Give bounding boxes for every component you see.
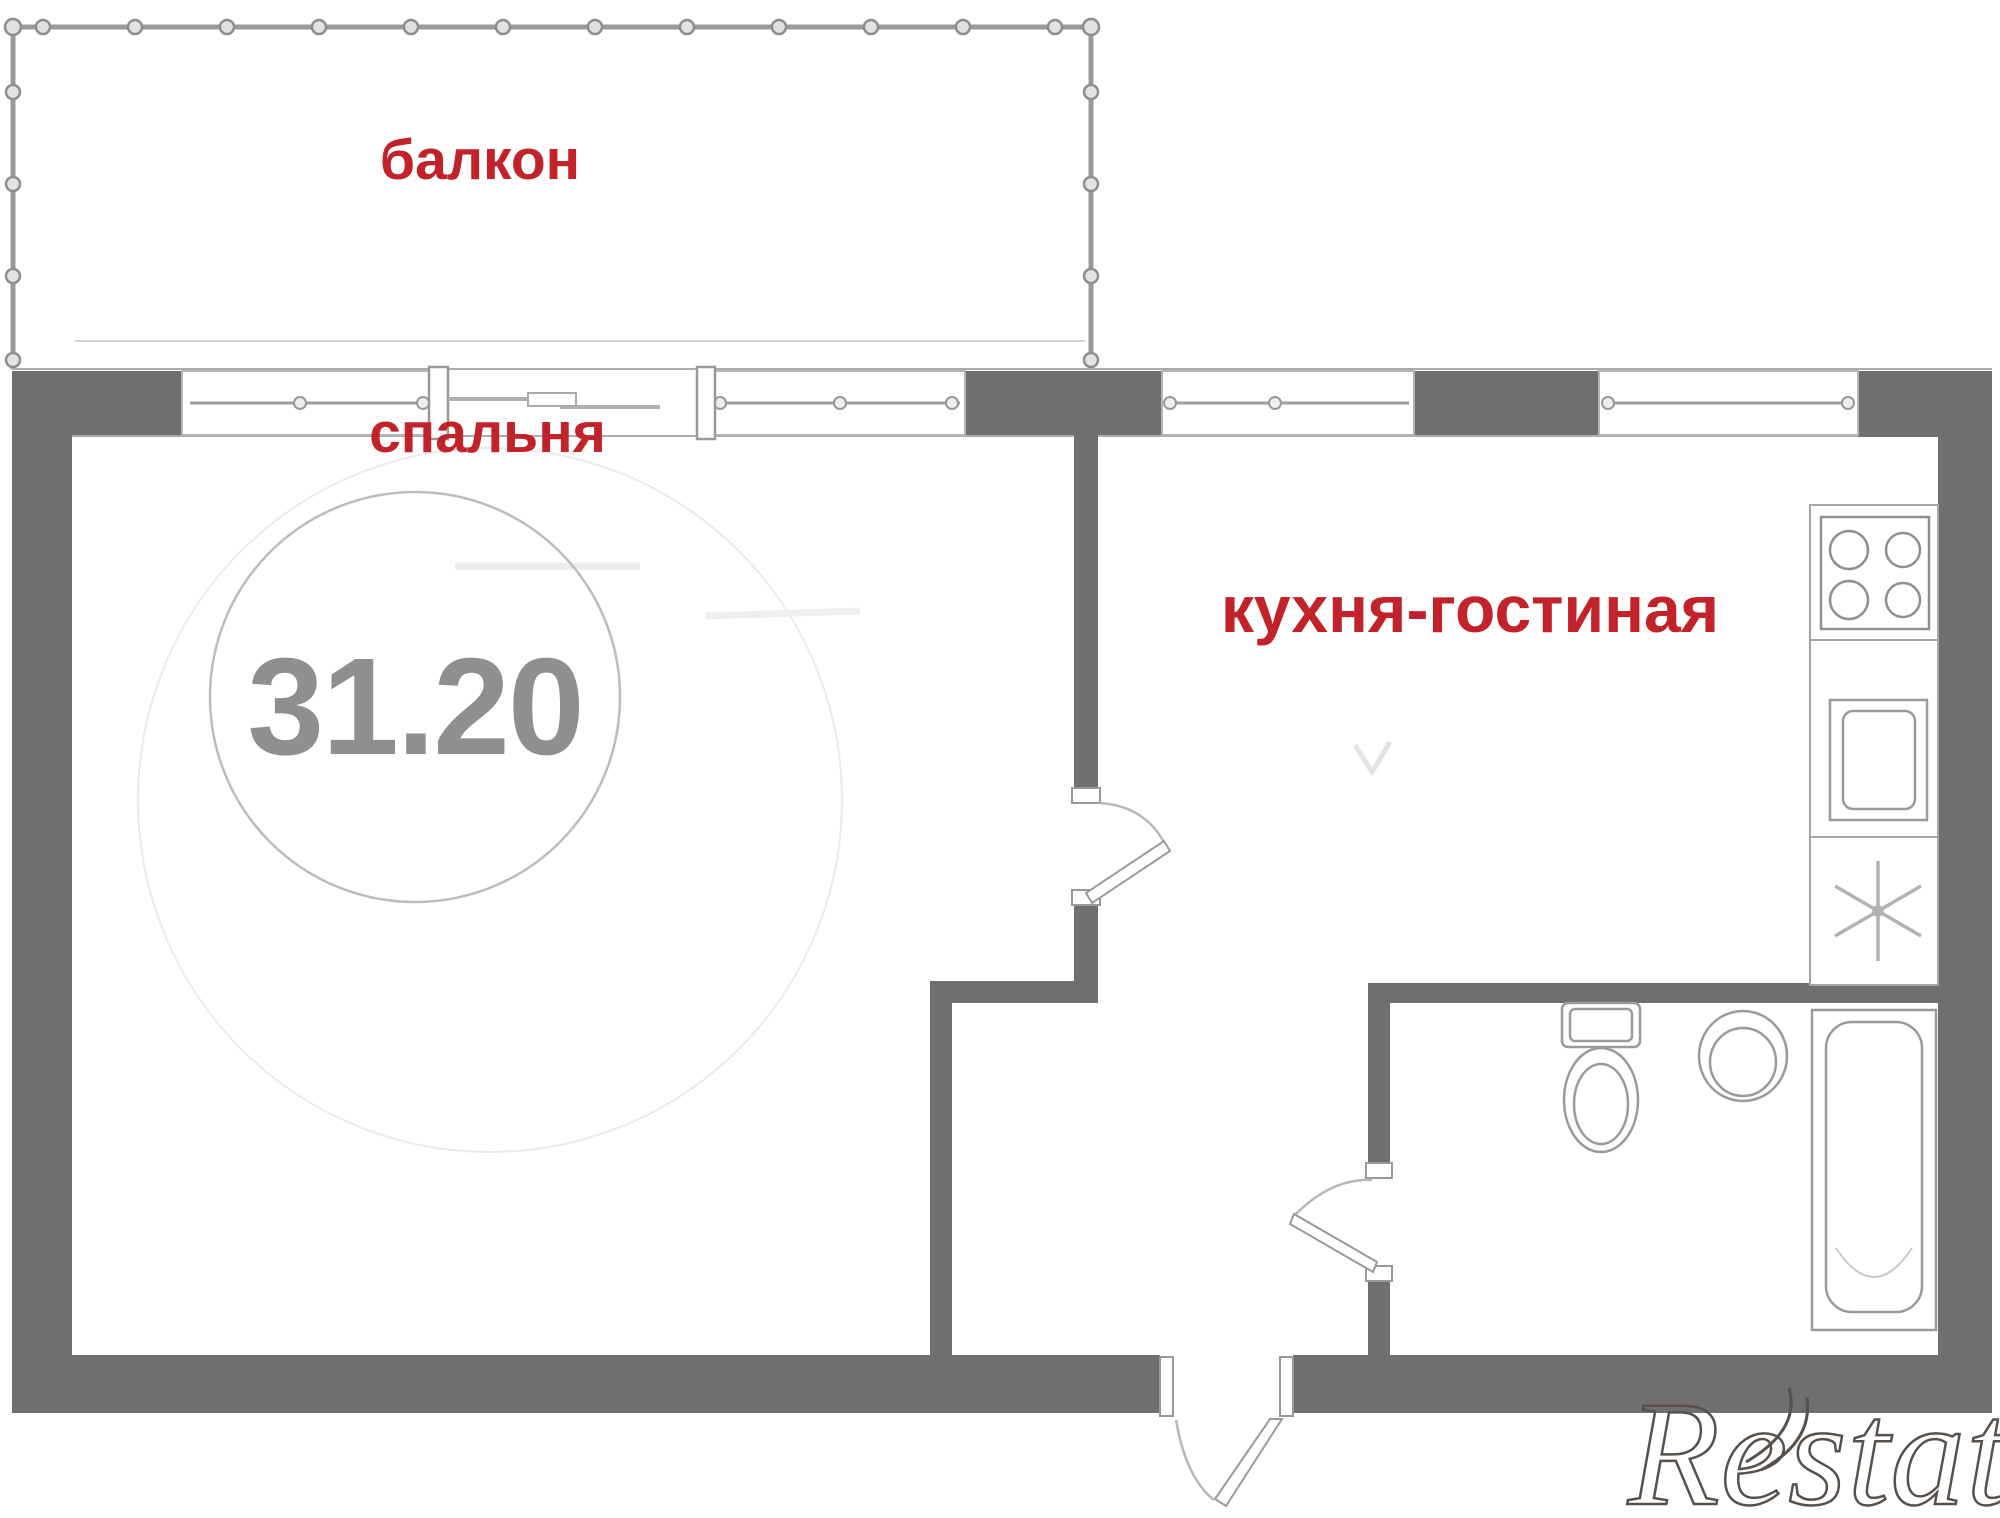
bedroom-area-value: 31.20 — [205, 628, 625, 787]
balcony-railing — [5, 19, 1099, 369]
washbasin-icon — [1699, 1011, 1787, 1101]
ghost-watermark-marks — [138, 448, 1390, 1152]
balcony-label: балкон — [355, 132, 605, 189]
kitchen-living-label: кухня-гостиная — [1150, 576, 1790, 642]
sink-icon — [1830, 700, 1927, 820]
toilet-icon — [1562, 1003, 1640, 1152]
stove-icon — [1821, 517, 1929, 629]
bedroom-kitchen-door — [1072, 788, 1170, 905]
walls — [12, 371, 1992, 1413]
bathtub-icon — [1812, 1010, 1936, 1330]
entrance-door — [1160, 1357, 1293, 1506]
bathroom-door — [1290, 1163, 1392, 1281]
watermark-text: Restate — [1628, 1368, 2000, 1518]
bedroom-label: спальня — [345, 405, 630, 462]
floor-plan: балкон спальня кухня-гостиная 31.20 Rest… — [0, 0, 2000, 1518]
